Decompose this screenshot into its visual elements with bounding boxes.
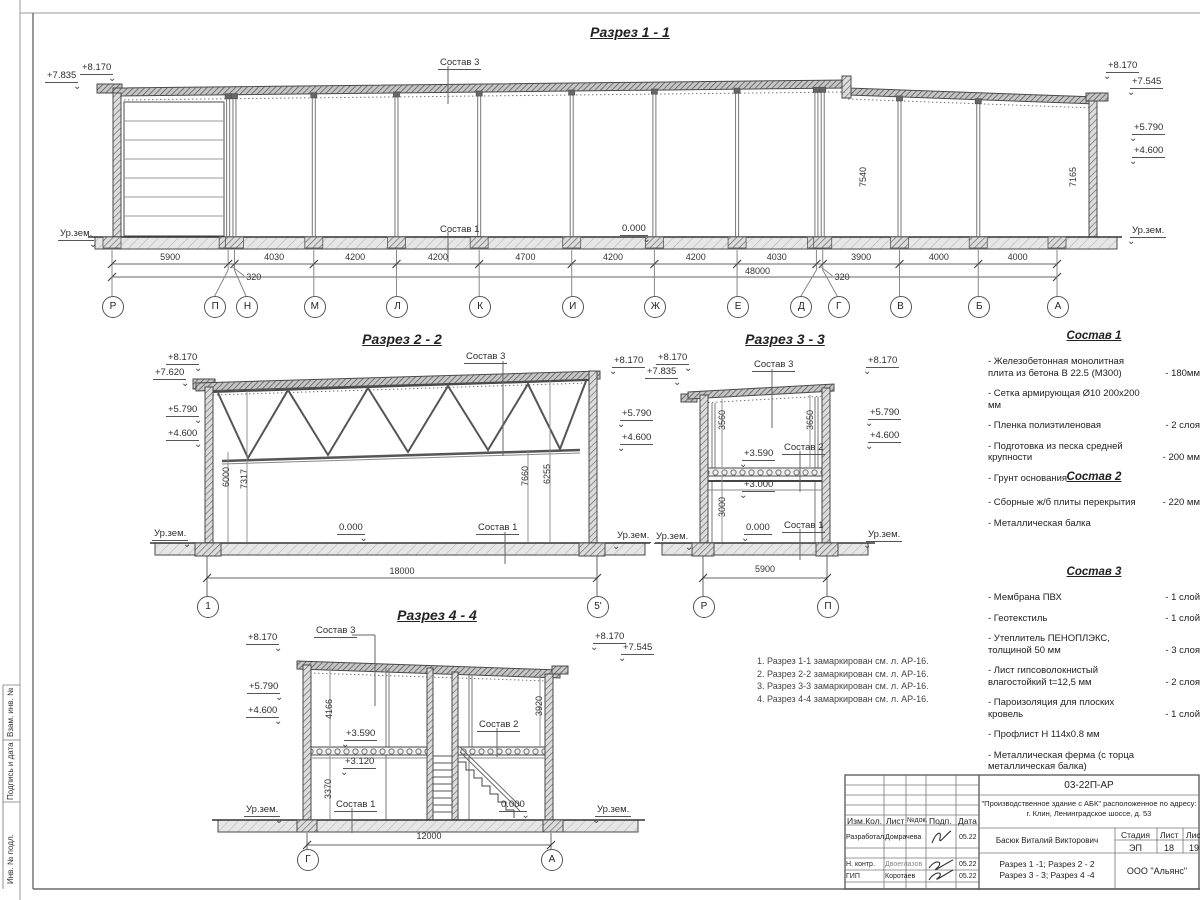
stamp-header-list: Лист	[886, 816, 904, 826]
material-item: - Лист гипсоволокнистый влагостойкий t=1…	[988, 665, 1200, 688]
elevation-mark: +8.170	[656, 352, 689, 365]
elevation-mark: +5.790	[1132, 122, 1165, 135]
drawing-title-line2: Разрез 3 - 3; Разрез 4 -4	[999, 870, 1094, 880]
level-arrow-icon	[863, 541, 871, 550]
material-name: - Утеплитель ПЕНОПЛЭКС, толщиной 50 мм	[988, 633, 1140, 656]
overall-dim: 5900	[755, 564, 775, 575]
bay-dim: 4200	[686, 252, 706, 263]
note-line: 2. Разрез 2-2 замаркирован см. л. АР-16.	[757, 668, 929, 681]
note-line: 3. Разрез 3-3 замаркирован см. л. АР-16.	[757, 680, 929, 693]
level-arrow-icon	[739, 491, 747, 500]
bay-dim: 4700	[515, 252, 535, 263]
sheet-number: 18	[1164, 843, 1174, 853]
section-1-1-title: Разрез 1 - 1	[590, 27, 670, 38]
height-dim: 3650	[805, 410, 816, 430]
section-3-3-title: Разрез 3 - 3	[745, 334, 825, 345]
elevation-mark: +5.790	[868, 407, 901, 420]
material-item: - Железобетонная монолитная плита из бет…	[988, 356, 1200, 379]
height-dim: 7317	[239, 469, 250, 489]
level-arrow-icon	[1103, 72, 1111, 81]
level-arrow-icon	[685, 543, 693, 552]
level-arrow-icon	[612, 542, 620, 551]
level-arrow-icon	[741, 534, 749, 543]
material-name: - Металлическая ферма (с торца металличе…	[988, 750, 1140, 773]
axis-bubble: 1	[197, 596, 219, 618]
section-2-2-title: Разрез 2 - 2	[362, 334, 442, 345]
sostav-3-list: Состав 3 - Мембрана ПВХ- 1 слой- Геотекс…	[988, 566, 1200, 782]
material-qty: - 3 слоя	[1165, 645, 1200, 657]
height-dim: 7540	[858, 167, 869, 187]
elevation-mark: 0.000	[620, 223, 648, 236]
level-arrow-icon	[183, 540, 191, 549]
elevation-mark: +7.835	[645, 366, 678, 379]
level-arrow-icon	[274, 717, 282, 726]
elevation-mark: +7.545	[1130, 76, 1163, 89]
level-arrow-icon	[684, 364, 692, 373]
axis-bubble: В	[890, 296, 912, 318]
material-name: - Сетка армирующая Ø10 200х200 мм	[988, 388, 1140, 411]
stamp-name: Двоеглазов	[885, 861, 922, 868]
material-name: - Железобетонная монолитная плита из бет…	[988, 356, 1140, 379]
sostav-2-list: Состав 2 - Сборные ж/б плиты перекрытия-…	[988, 471, 1200, 538]
level-arrow-icon	[194, 364, 202, 373]
elevation-mark: +7.545	[621, 642, 654, 655]
axis-bubble: 5'	[587, 596, 609, 618]
material-item: - Сетка армирующая Ø10 200х200 мм	[988, 388, 1200, 411]
material-qty: - 1 слой	[1165, 592, 1200, 604]
height-dim: 6000	[221, 467, 232, 487]
material-qty: - 2 слоя	[1165, 420, 1200, 432]
layer-callout: Состав 3	[438, 57, 481, 70]
stamp-role: ГИП	[846, 873, 860, 880]
ground-level-mark: Ур.зем.	[615, 530, 651, 543]
layer-callout: Состав 1	[334, 799, 377, 812]
stamp-name: Домрачева	[885, 834, 921, 841]
material-item: - Профлист Н 114х0.8 мм	[988, 729, 1200, 741]
layer-callout: Состав 1	[476, 522, 519, 535]
axis-bubble: М	[304, 296, 326, 318]
material-item: - Геотекстиль- 1 слой	[988, 613, 1200, 625]
stamp-header-podp: Подп.	[929, 816, 952, 826]
level-arrow-icon	[275, 816, 283, 825]
level-arrow-icon	[590, 643, 598, 652]
height-dim: 3000	[717, 497, 728, 517]
elevation-mark: +5.790	[166, 404, 199, 417]
material-qty: - 180мм	[1165, 368, 1200, 380]
stage-value: ЭП	[1129, 843, 1142, 853]
height-dim: 3560	[717, 410, 728, 430]
material-qty: - 1 слой	[1165, 709, 1200, 721]
axis-bubble: Г	[297, 849, 319, 871]
bay-dim: 4200	[428, 252, 448, 263]
elevation-mark: +4.600	[620, 432, 653, 445]
level-arrow-icon	[865, 442, 873, 451]
sostav-3-heading: Состав 3	[988, 566, 1200, 578]
layer-callout: Состав 3	[314, 625, 357, 638]
level-arrow-icon	[275, 693, 283, 702]
axis-bubble: П	[204, 296, 226, 318]
stamp-header-doc: №док.	[907, 817, 928, 824]
elevation-mark: +8.170	[80, 62, 113, 75]
stamp-name: Коротаев	[885, 873, 915, 880]
material-qty: - 1 слой	[1165, 613, 1200, 625]
material-item: - Подготовка из песка средней крупности-…	[988, 441, 1200, 464]
overall-dim: 18000	[389, 566, 414, 577]
material-name: - Сборные ж/б плиты перекрытия	[988, 497, 1140, 509]
material-name: - Лист гипсоволокнистый влагостойкий t=1…	[988, 665, 1140, 688]
stamp-header-data: Дата	[958, 816, 977, 826]
level-arrow-icon	[618, 654, 626, 663]
layer-callout: Состав 2	[782, 442, 825, 455]
stamp-role: Разработал	[846, 834, 884, 841]
level-arrow-icon	[73, 82, 81, 91]
axis-bubble: И	[562, 296, 584, 318]
material-item: - Пленка полиэтиленовая- 2 слоя	[988, 420, 1200, 432]
sheets-total: 19	[1189, 843, 1199, 853]
material-name: - Металлическая балка	[988, 518, 1140, 530]
material-name: - Мембрана ПВХ	[988, 592, 1140, 604]
height-dim: 3920	[534, 696, 545, 716]
material-name: - Подготовка из песка средней крупности	[988, 441, 1140, 464]
level-arrow-icon	[1127, 237, 1135, 246]
sostav-2-items: - Сборные ж/б плиты перекрытия- 220 мм- …	[988, 497, 1200, 529]
material-name: - Профлист Н 114х0.8 мм	[988, 729, 1140, 741]
elevation-mark: 0.000	[499, 799, 527, 812]
ground-level-mark: Ур.зем.	[58, 228, 94, 241]
level-arrow-icon	[359, 534, 367, 543]
elevation-mark: 0.000	[337, 522, 365, 535]
elevation-mark: +8.170	[612, 355, 645, 368]
height-dim: 6255	[542, 464, 553, 484]
project-address-line1: "Производственное здание с АБК" располож…	[982, 799, 1197, 808]
signature-scribbles	[929, 831, 953, 880]
ground-level-mark: Ур.зем.	[244, 804, 280, 817]
level-arrow-icon	[863, 367, 871, 376]
section-4-4-title: Разрез 4 - 4	[397, 610, 477, 621]
ground-level-mark: Ур.зем.	[152, 528, 188, 541]
level-arrow-icon	[642, 235, 650, 244]
level-arrow-icon	[181, 379, 189, 388]
material-item: - Металлическая ферма (с торца металличе…	[988, 750, 1200, 773]
general-notes: 1. Разрез 1-1 замаркирован см. л. АР-16.…	[757, 655, 929, 705]
elevation-mark: +7.620	[153, 367, 186, 380]
axis-bubble: Г	[828, 296, 850, 318]
height-dim: 3370	[323, 779, 334, 799]
elevation-mark: +3.590	[742, 448, 775, 461]
frame-label-inv: Инв. № подл.	[5, 834, 16, 884]
note-line: 1. Разрез 1-1 замаркирован см. л. АР-16.	[757, 655, 929, 668]
level-arrow-icon	[739, 460, 747, 469]
bay-dim: 4200	[345, 252, 365, 263]
level-arrow-icon	[609, 367, 617, 376]
height-dim: 7165	[1068, 167, 1079, 187]
material-name: - Геотекстиль	[988, 613, 1140, 625]
level-arrow-icon	[1127, 88, 1135, 97]
level-arrow-icon	[340, 768, 348, 777]
level-arrow-icon	[89, 240, 97, 249]
overall-dim: 12000	[416, 831, 441, 842]
project-address-line2: г. Клин, Ленинградское шоссе, д. 53	[1027, 809, 1152, 818]
axis-bubble: П	[817, 596, 839, 618]
layer-callout: Состав 2	[477, 719, 520, 732]
level-arrow-icon	[108, 74, 116, 83]
sostav-1-list: Состав 1 - Железобетонная монолитная пли…	[988, 330, 1200, 493]
stamp-author: Басюк Виталий Викторович	[996, 836, 1098, 845]
layer-callout: Состав 1	[782, 520, 825, 533]
elevation-mark: +3.000	[742, 479, 775, 492]
elevation-mark: +8.170	[246, 632, 279, 645]
axis-bubble: Р	[102, 296, 124, 318]
note-line: 4. Разрез 4-4 замаркирован см. л. АР-16.	[757, 693, 929, 706]
sostav-1-items: - Железобетонная монолитная плита из бет…	[988, 356, 1200, 484]
elevation-mark: +5.790	[620, 408, 653, 421]
layer-callout: Состав 1	[438, 224, 481, 237]
ground-level-mark: Ур.зем.	[1130, 225, 1166, 238]
stamp-role: Н. контр.	[846, 861, 875, 868]
elevation-mark: +4.600	[246, 705, 279, 718]
material-item: - Сборные ж/б плиты перекрытия- 220 мм	[988, 497, 1200, 509]
stamp-header-izm: Изм.Кол.	[847, 816, 882, 826]
level-arrow-icon	[194, 440, 202, 449]
elevation-mark: +3.120	[343, 756, 376, 769]
level-arrow-icon	[865, 419, 873, 428]
level-arrow-icon	[274, 644, 282, 653]
material-qty: - 200 мм	[1163, 452, 1200, 464]
material-qty: - 220 мм	[1163, 497, 1200, 509]
axis-bubble: Е	[727, 296, 749, 318]
elevation-mark: +4.600	[1132, 145, 1165, 158]
elevation-mark: +8.170	[166, 352, 199, 365]
layer-callout: Состав 3	[464, 351, 507, 364]
sostav-3-items: - Мембрана ПВХ- 1 слой- Геотекстиль- 1 с…	[988, 592, 1200, 773]
sostav-1-heading: Состав 1	[988, 330, 1200, 342]
axis-bubble: А	[541, 849, 563, 871]
axis-bubble: А	[1047, 296, 1069, 318]
frame-label-vzam: Взам. инв. №	[5, 687, 16, 737]
bay-dim: 4000	[1008, 252, 1028, 263]
axis-bubble: Р	[693, 596, 715, 618]
ground-level-mark: Ур.зем.	[866, 529, 902, 542]
bay-dim: 4000	[929, 252, 949, 263]
elevation-mark: +8.170	[1106, 60, 1139, 73]
elevation-mark: +4.600	[868, 430, 901, 443]
bay-dim: 320	[835, 272, 850, 283]
level-arrow-icon	[341, 740, 349, 749]
bay-dim: 3900	[851, 252, 871, 263]
elevation-mark: +3.590	[344, 728, 377, 741]
frame-label-podpis: Подпись и дата	[5, 742, 16, 800]
material-name: - Пленка полиэтиленовая	[988, 420, 1140, 432]
bay-dim: 5900	[160, 252, 180, 263]
bay-dim: 4030	[264, 252, 284, 263]
elevation-mark: +5.790	[247, 681, 280, 694]
layer-callout: Состав 3	[752, 359, 795, 372]
drawing-sheet: Разрез 1 - 1 Разрез 2 - 2 Разрез 3 - 3 Р…	[0, 0, 1200, 900]
sheets-header: Листов	[1186, 830, 1200, 840]
level-arrow-icon	[521, 811, 529, 820]
material-qty: - 2 слоя	[1165, 677, 1200, 689]
height-dim: 7660	[520, 466, 531, 486]
height-dim: 4166	[324, 699, 335, 719]
level-arrow-icon	[1129, 157, 1137, 166]
company-name: ООО "Альянс"	[1127, 866, 1187, 876]
bay-dim: 4030	[767, 252, 787, 263]
level-arrow-icon	[617, 444, 625, 453]
stamp-date: 05.22	[959, 861, 977, 868]
material-item: - Мембрана ПВХ- 1 слой	[988, 592, 1200, 604]
level-arrow-icon	[617, 420, 625, 429]
elevation-mark: +7.835	[45, 70, 78, 83]
ground-level-mark: Ур.зем.	[595, 804, 631, 817]
level-arrow-icon	[194, 416, 202, 425]
elevation-mark: +4.600	[166, 428, 199, 441]
level-arrow-icon	[673, 378, 681, 387]
material-item: - Металлическая балка	[988, 518, 1200, 530]
bay-dim: 4200	[603, 252, 623, 263]
ground-level-mark: Ур.зем.	[654, 531, 690, 544]
level-arrow-icon	[592, 816, 600, 825]
material-item: - Утеплитель ПЕНОПЛЭКС, толщиной 50 мм- …	[988, 633, 1200, 656]
sheet-header: Лист	[1160, 830, 1178, 840]
elevation-mark: 0.000	[744, 522, 772, 535]
level-arrow-icon	[1129, 134, 1137, 143]
elevation-mark: +8.170	[866, 355, 899, 368]
overall-dim: 48000	[745, 266, 770, 277]
stamp-date: 05.22	[959, 873, 977, 880]
material-name: - Пароизоляция для плоских кровель	[988, 697, 1140, 720]
document-code: 03-22П-АР	[1064, 780, 1113, 791]
stage-header: Стадия	[1121, 830, 1150, 840]
sostav-2-heading: Состав 2	[988, 471, 1200, 483]
drawing-title-line1: Разрез 1 -1; Разрез 2 - 2	[999, 859, 1094, 869]
material-item: - Пароизоляция для плоских кровель- 1 сл…	[988, 697, 1200, 720]
stamp-date: 05.22	[959, 834, 977, 841]
axis-bubble: К	[469, 296, 491, 318]
bay-dim: 320	[246, 272, 261, 283]
